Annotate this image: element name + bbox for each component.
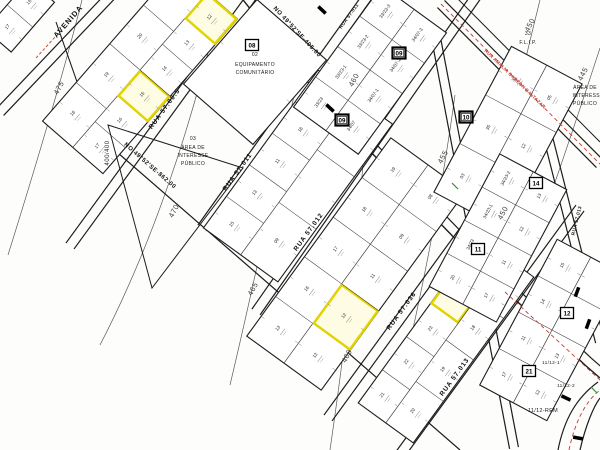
block-number-marker: 14 bbox=[530, 178, 543, 189]
block-number-marker: 10 bbox=[460, 112, 473, 123]
svg-text:08: 08 bbox=[249, 42, 256, 49]
svg-text:09: 09 bbox=[396, 50, 403, 57]
lot-blocks-layer: 17181819201716151413121513111610090933/2… bbox=[0, 0, 600, 443]
cadastral-map-canvas[interactable]: 17181819201716151413121513111610090933/2… bbox=[0, 0, 600, 450]
svg-text:02: 02 bbox=[252, 52, 258, 58]
svg-text:09: 09 bbox=[339, 117, 346, 124]
svg-text:11/12-2: 11/12-2 bbox=[557, 383, 575, 389]
svg-text:11: 11 bbox=[475, 246, 482, 253]
svg-text:400/400: 400/400 bbox=[105, 140, 111, 165]
svg-text:COMUNITÁRIO: COMUNITÁRIO bbox=[236, 69, 275, 76]
block-number-marker: 12 bbox=[561, 308, 574, 319]
svg-text:F.L.I.P.: F.L.I.P. bbox=[519, 40, 536, 46]
block-number-marker: 08 bbox=[246, 40, 259, 51]
block-number-marker: 09 bbox=[393, 48, 406, 59]
svg-text:465: 465 bbox=[246, 281, 261, 298]
svg-text:PÚBLICO: PÚBLICO bbox=[573, 100, 597, 107]
svg-text:445: 445 bbox=[576, 66, 591, 83]
svg-text:14: 14 bbox=[533, 180, 540, 187]
svg-text:10: 10 bbox=[463, 114, 470, 121]
svg-text:PÚBLICO: PÚBLICO bbox=[181, 160, 205, 167]
block-number-marker: 09 bbox=[336, 115, 349, 126]
svg-text:455: 455 bbox=[436, 149, 451, 166]
svg-text:INTERESSE: INTERESSE bbox=[572, 93, 600, 99]
svg-text:33: 33 bbox=[525, 31, 531, 37]
svg-text:INTERESSE: INTERESSE bbox=[177, 153, 208, 159]
block-number-marker: 11 bbox=[472, 244, 485, 255]
lot-block: 1718 bbox=[0, 0, 54, 52]
svg-text:470: 470 bbox=[167, 203, 182, 220]
block-number-marker: 21 bbox=[523, 366, 536, 377]
svg-text:NO 49°52'SE-862.00: NO 49°52'SE-862.00 bbox=[122, 142, 177, 191]
svg-text:475: 475 bbox=[52, 80, 67, 97]
svg-text:EQUIPAMENTO: EQUIPAMENTO bbox=[235, 62, 275, 68]
svg-text:11/12-1: 11/12-1 bbox=[542, 360, 560, 366]
cadastral-map-viewport[interactable]: 17181819201716151413121513111610090933/2… bbox=[0, 0, 600, 450]
svg-text:21: 21 bbox=[526, 368, 533, 375]
svg-text:ÁREA DE: ÁREA DE bbox=[573, 84, 597, 91]
svg-text:12: 12 bbox=[564, 310, 571, 317]
svg-text:03: 03 bbox=[190, 136, 196, 142]
svg-text:11/12-REM: 11/12-REM bbox=[528, 408, 558, 414]
svg-text:ÁREA DE: ÁREA DE bbox=[181, 144, 205, 151]
